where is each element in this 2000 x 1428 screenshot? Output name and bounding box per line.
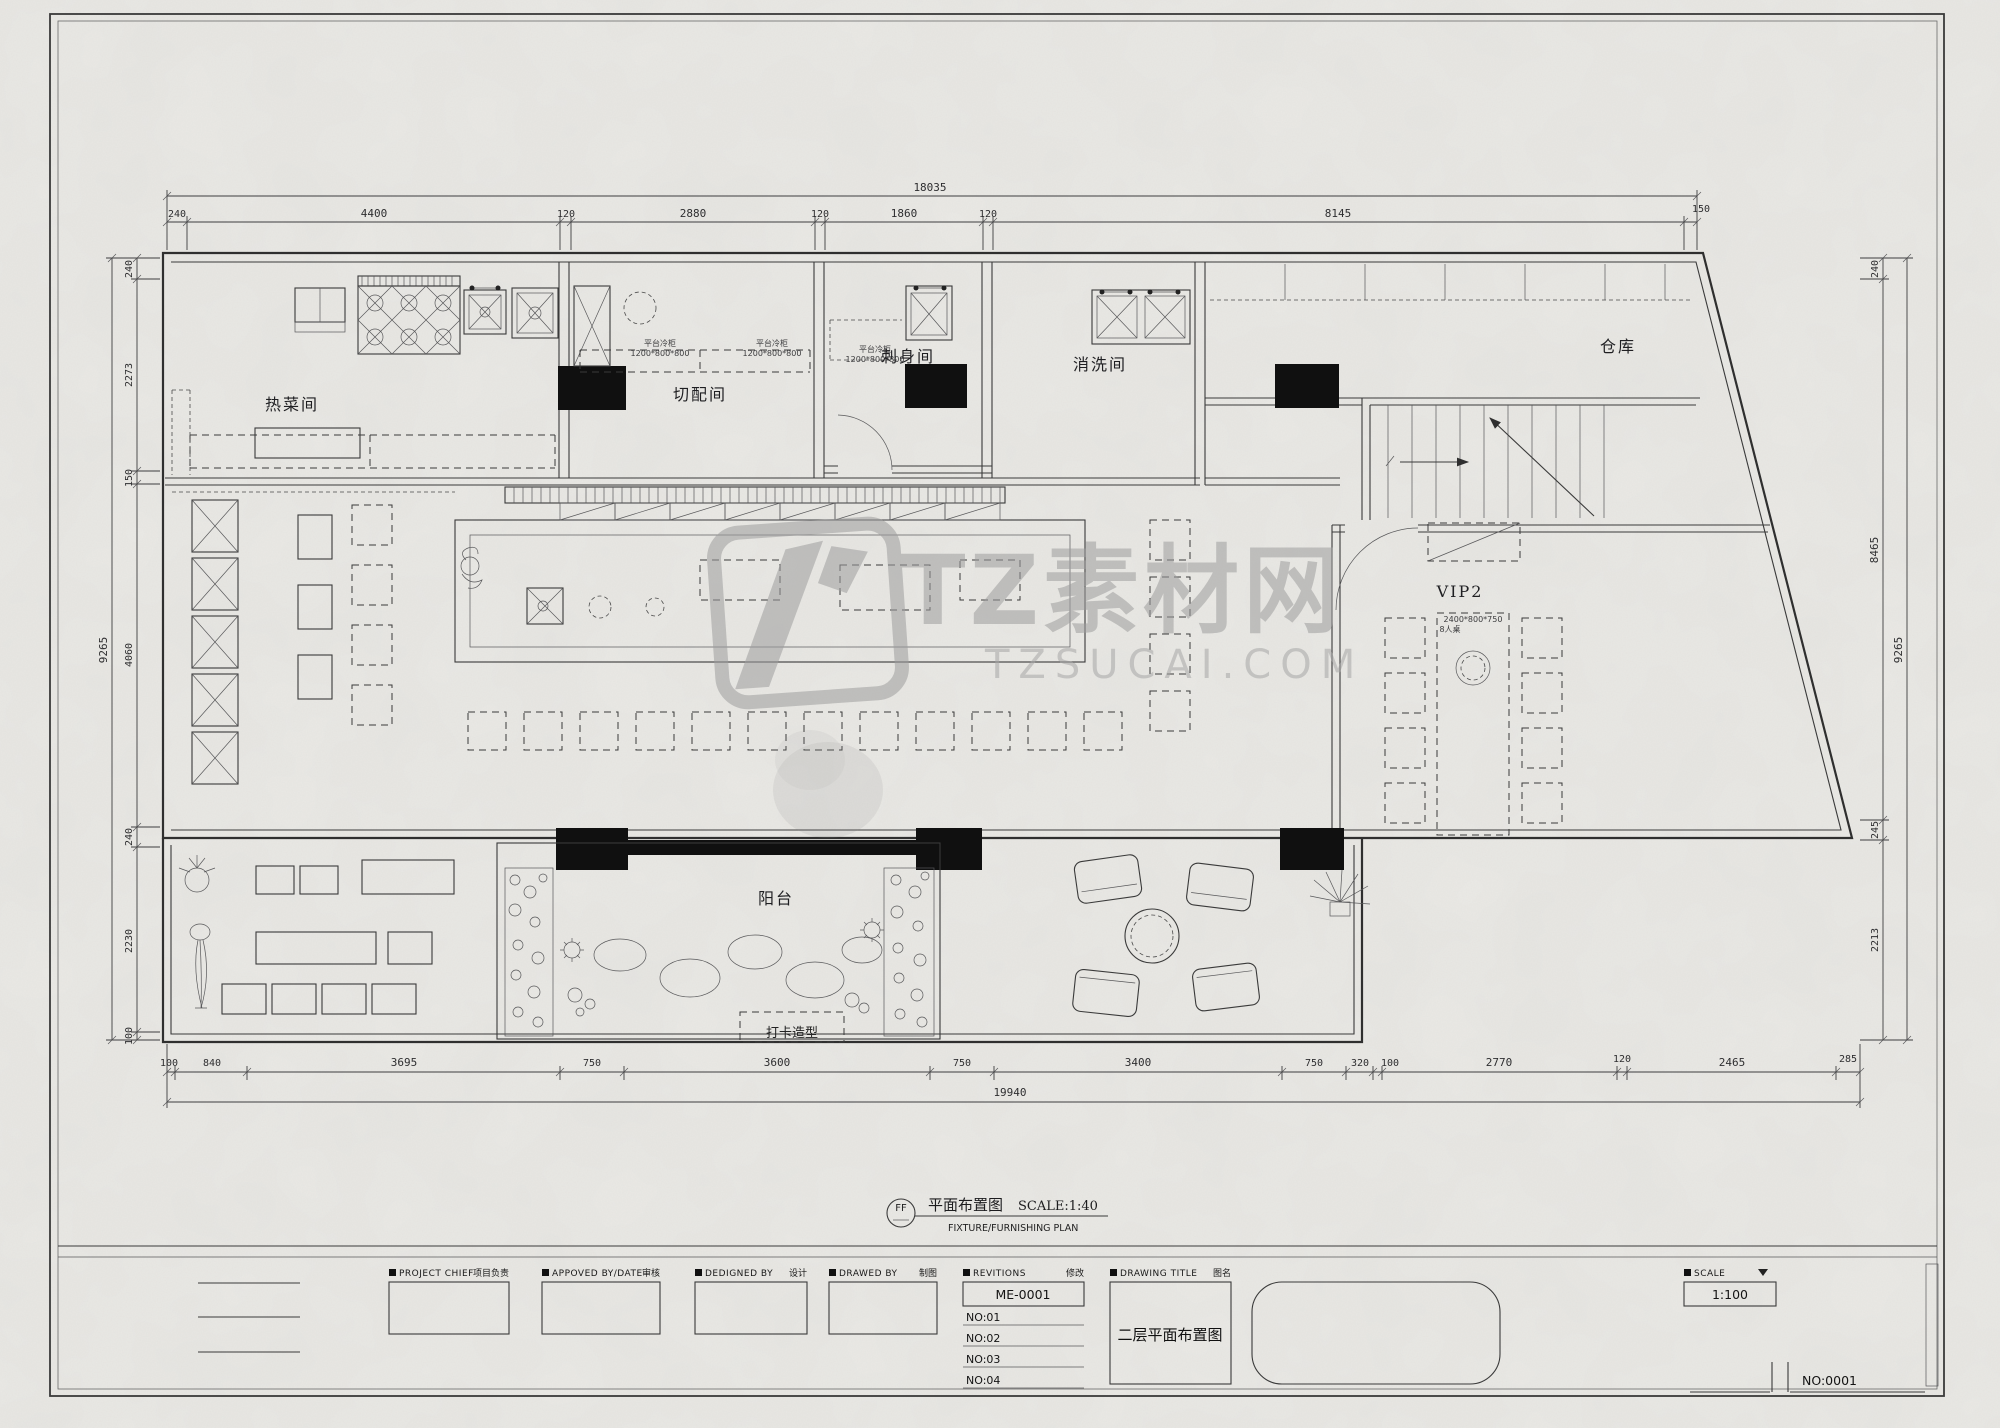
dim-top-2: 120 (557, 209, 575, 220)
dim-left-0: 240 (124, 260, 135, 278)
dim-top-6: 120 (979, 209, 997, 220)
field-project-chief-cn: 项目负责 (473, 1267, 509, 1279)
dim-bot-2: 3695 (391, 1056, 418, 1069)
field-designed-en: DEDIGNED BY (705, 1269, 773, 1279)
sheet-number-value: NO:0001 (1802, 1373, 1857, 1388)
watermark-brand: TZ素材网 (900, 535, 1343, 647)
dim-right-3: 2213 (1870, 928, 1881, 952)
dim-bot-7: 750 (1305, 1058, 1323, 1069)
revision-item-3: NO:03 (966, 1353, 1000, 1366)
dim-bot-3: 750 (583, 1058, 601, 1069)
dim-bot-1: 840 (203, 1058, 221, 1069)
label-cold-counter-2: 平台冷柜 (756, 338, 788, 348)
dim-left-6: 100 (124, 1027, 135, 1045)
revision-item-2: NO:02 (966, 1332, 1000, 1345)
dim-top-0: 240 (168, 209, 186, 220)
field-approved-en: APPOVED BY/DATE (552, 1269, 643, 1279)
revision-item-1: NO:01 (966, 1311, 1000, 1324)
label-cold-counter-2-size: 1200*800*800 (743, 349, 802, 358)
room-balcony: 阳台 (758, 889, 794, 908)
drawing-title-value: 二层平面布置图 (1117, 1326, 1222, 1344)
field-scale-en: SCALE (1694, 1269, 1725, 1279)
dim-bot-13: 285 (1839, 1054, 1857, 1065)
dim-top-3: 2880 (680, 207, 707, 220)
dim-right-overall: 9265 (1892, 637, 1905, 664)
dim-bot-8: 320 (1351, 1058, 1369, 1069)
field-approved-cn: 审核 (642, 1267, 660, 1279)
label-vip-table-type: 8人桌 (1439, 624, 1460, 634)
field-project-chief-en: PROJECT CHIEF (399, 1269, 474, 1279)
field-drawed-cn: 制图 (919, 1267, 937, 1279)
label-cold-counter-1-size: 1200*800*800 (631, 349, 690, 358)
room-washing: 消洗间 (1073, 355, 1127, 374)
dim-bot-11: 120 (1613, 1054, 1631, 1065)
scale-value: 1:100 (1712, 1287, 1748, 1302)
plan-label-subtitle: FIXTURE/FURNISHING PLAN (948, 1223, 1078, 1234)
dim-bot-0: 100 (160, 1058, 178, 1069)
field-drawing-title-en: DRAWING TITLE (1120, 1269, 1197, 1279)
room-vip: VIP2 (1436, 582, 1484, 601)
dim-bot-10: 2770 (1486, 1056, 1513, 1069)
label-vip-table-size: 2400*800*750 (1444, 615, 1503, 624)
dim-left-4: 240 (124, 828, 135, 846)
dim-bot-9: 100 (1381, 1058, 1399, 1069)
field-drawed-en: DRAWED BY (839, 1269, 898, 1279)
drawing-sheet: { "watermark": { "brand": "TZ素材网", "doma… (0, 0, 2000, 1428)
dim-left-5: 2230 (124, 929, 135, 953)
dim-bottom-total: 19940 (993, 1086, 1026, 1099)
room-storage: 仓库 (1600, 337, 1636, 356)
dim-left-overall: 9265 (97, 637, 110, 664)
room-sashimi: 刺身间 (881, 347, 935, 366)
dim-top-5: 1860 (891, 207, 918, 220)
watermark-domain: TZSUCAI.COM (984, 642, 1364, 688)
dim-top-4: 120 (811, 209, 829, 220)
dim-bot-4: 3600 (764, 1056, 791, 1069)
dim-bot-5: 750 (953, 1058, 971, 1069)
room-photo-spot: 打卡造型 (766, 1026, 818, 1041)
field-revisions-cn: 修改 (1066, 1267, 1084, 1279)
floor-plan-canvas: 18035 240 4400 120 2880 120 1860 120 814… (0, 0, 2000, 1428)
dim-top-1: 4400 (361, 207, 388, 220)
plan-label-scale: SCALE:1:40 (1018, 1199, 1098, 1214)
field-designed-cn: 设计 (789, 1267, 807, 1279)
dim-right-2: 245 (1870, 821, 1881, 839)
dim-bot-12: 2465 (1719, 1056, 1746, 1069)
revision-code: ME-0001 (995, 1287, 1050, 1302)
revision-item-4: NO:04 (966, 1374, 1000, 1387)
dim-right-1: 8465 (1868, 537, 1881, 564)
dim-top-total: 18035 (913, 181, 946, 194)
dim-top-8: 150 (1692, 204, 1710, 215)
dim-top-7: 8145 (1325, 207, 1352, 220)
dim-left-2: 150 (124, 469, 135, 487)
room-hot-dish: 热菜间 (265, 395, 319, 414)
dim-left-1: 2273 (124, 363, 135, 387)
room-prep: 切配间 (673, 385, 727, 404)
plan-label-symbol: FF (895, 1203, 907, 1214)
field-drawing-title-cn: 图名 (1213, 1267, 1231, 1279)
plan-label-title: 平面布置图 (928, 1196, 1003, 1214)
field-revisions-en: REVITIONS (973, 1269, 1026, 1279)
dim-left-3: 4060 (124, 643, 135, 667)
dim-bot-6: 3400 (1125, 1056, 1152, 1069)
dim-right-0: 240 (1870, 260, 1881, 278)
label-cold-counter-1: 平台冷柜 (644, 338, 676, 348)
